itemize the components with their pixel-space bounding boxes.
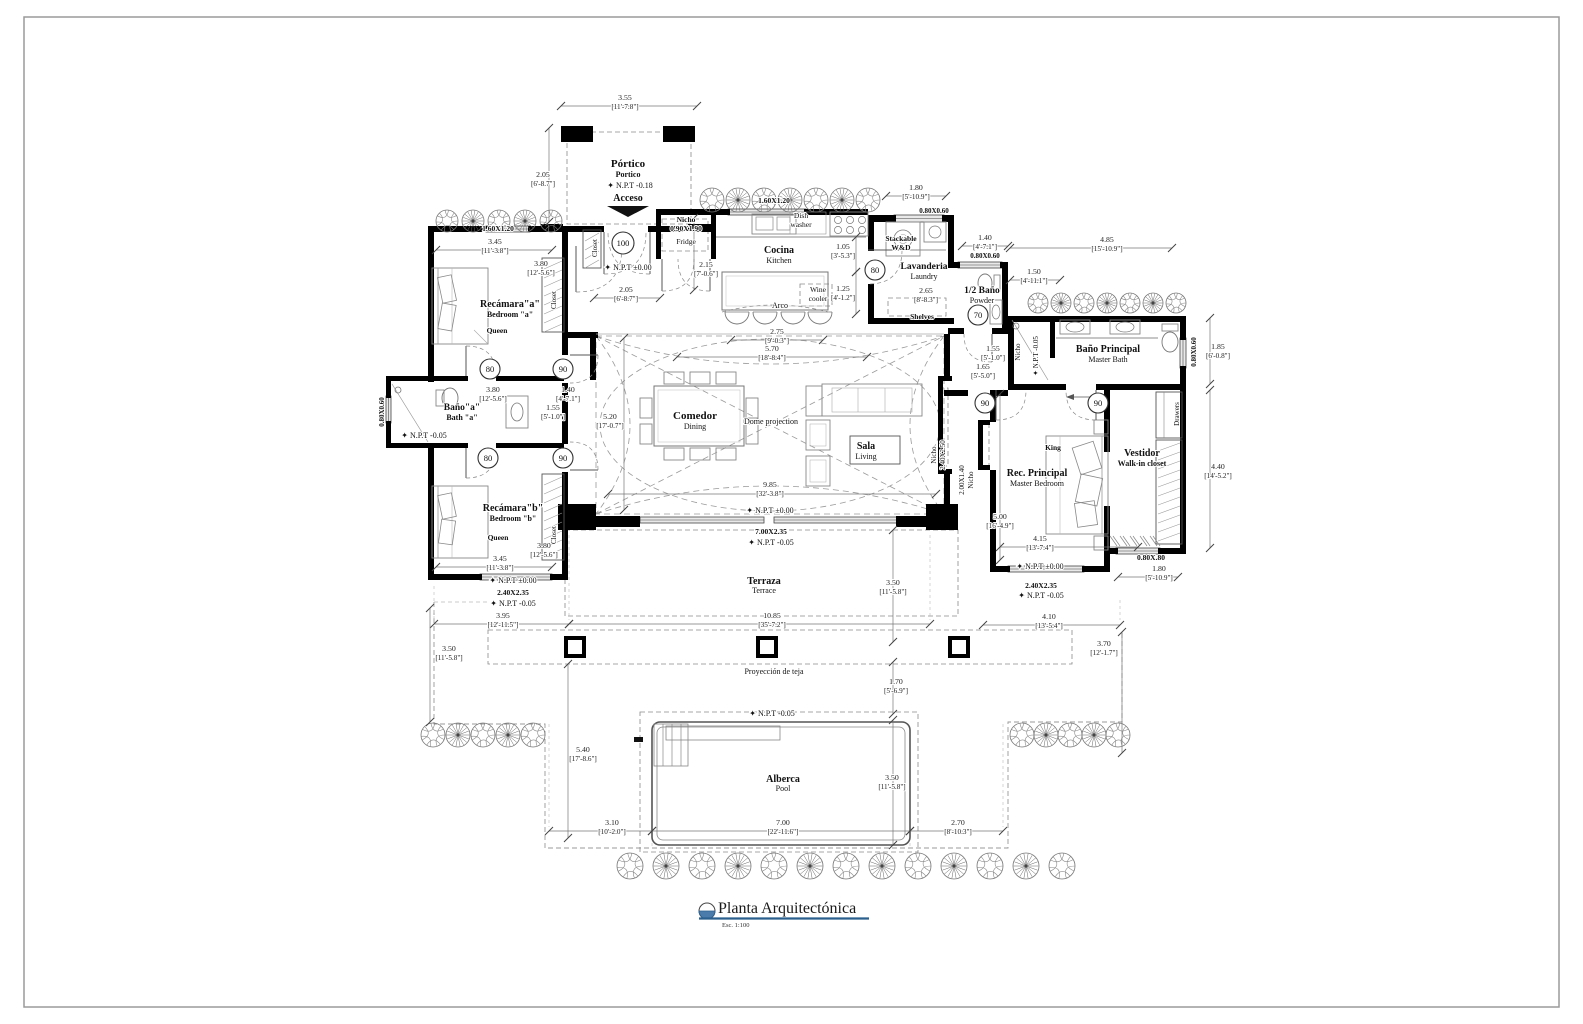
dim-label-imperial: [8'-10.3"]	[944, 828, 972, 836]
dim-label-metric: 3.45	[493, 554, 507, 563]
chair	[640, 424, 652, 444]
laundry-sink	[924, 222, 946, 242]
tree-icon	[856, 188, 880, 212]
tree-icon	[977, 853, 1003, 879]
plan-line	[1158, 533, 1180, 541]
wall	[938, 376, 952, 381]
wall	[663, 126, 695, 142]
chair	[716, 448, 736, 460]
dim-label-metric: 3.55	[618, 93, 632, 102]
room-dining: Comedor	[673, 410, 717, 422]
dim-label-imperial: [3'-5.3"]	[831, 252, 855, 260]
dim-label-metric: 2.70	[951, 818, 965, 827]
dim-label-metric: 1.25	[836, 284, 850, 293]
dim-label-imperial: [4'-11.1"]	[1020, 277, 1047, 285]
npt-terrace-door: ✦ N.P.T -0.05	[748, 538, 793, 547]
dim-label-imperial: [4'-1.2"]	[831, 294, 855, 302]
sink-basin	[756, 217, 773, 230]
plan-line	[1158, 479, 1180, 487]
dimensions-layer: 3.55[11'-7.8"]2.05[6'-8.7"]3.45[11'-3.8"…	[426, 93, 1232, 849]
dim-label-metric: 3.95	[496, 611, 510, 620]
bedroom-a-window-size: 1.60X1.20	[482, 224, 514, 233]
column	[566, 638, 584, 656]
bedroom-b-window-size: 2.40X2.35	[497, 588, 529, 597]
bed-queen-a: Queen	[487, 326, 509, 335]
dim-label-imperial: [6'-8.7"]	[614, 295, 638, 303]
vestidor-window-size: 0.80X.80	[1137, 553, 1165, 562]
tree-icon	[617, 853, 643, 879]
npt-bedroom-b: ✦ N.P.T ±0.00	[489, 576, 536, 585]
wall	[590, 332, 596, 380]
tree-icon	[1058, 723, 1082, 747]
dim-label-imperial: [5'-1.0"]	[981, 354, 1005, 362]
chair	[690, 372, 710, 384]
tree-icon	[833, 853, 859, 879]
dim-label-metric: 1.55	[986, 344, 1000, 353]
wall-nicho-2: Nicho	[967, 471, 975, 489]
room-master-bedroom: Rec. Principal	[1007, 468, 1068, 479]
dim-label-metric: 3.80	[486, 385, 500, 394]
room-living: Sala	[857, 441, 875, 452]
dim-label-imperial: [12'-5.6"]	[479, 395, 507, 403]
npt-portico: ✦ N.P.T -0.18	[607, 181, 652, 190]
burner-icon	[834, 216, 841, 223]
tree-icon	[521, 723, 545, 747]
dim-label-imperial: [17'-0.7"]	[596, 422, 624, 430]
bed-king: King	[1045, 443, 1061, 452]
dim-label-imperial: [35'-7.2"]	[758, 621, 786, 629]
wall	[948, 262, 960, 268]
room-bedroom-b-en: Bedroom "b"	[490, 514, 537, 523]
dim-label-imperial: [6'-8.7"]	[531, 180, 555, 188]
tree-icon	[1010, 723, 1034, 747]
tree-icon	[725, 853, 751, 879]
wall	[656, 209, 661, 259]
wall-nicho-2-size: 2.00X1.40	[958, 465, 966, 495]
tree-icon	[421, 723, 445, 747]
arch-label: Arco	[772, 301, 788, 310]
dim-label-imperial: [11'-3.8"]	[486, 564, 513, 572]
plan-line	[1158, 515, 1180, 523]
room-bedroom-b: Recámara"b"	[483, 503, 544, 514]
room-closet-en: Walk-in closet	[1118, 459, 1167, 468]
tree-icon	[471, 723, 495, 747]
dim-label-metric: 1.05	[836, 242, 850, 251]
plan-line	[544, 486, 562, 494]
vanity	[506, 396, 528, 428]
chair	[716, 372, 736, 384]
wall	[1008, 316, 1180, 322]
plan-line	[1143, 536, 1150, 546]
wall	[978, 465, 990, 470]
wall	[944, 390, 968, 396]
shelves: Shelves	[910, 312, 934, 321]
chair	[690, 448, 710, 460]
wall-nicho-1: Nicho	[930, 446, 938, 464]
npt-shower: ✦ N.P.T -0.05	[1032, 336, 1040, 376]
door-tag-number: 90	[1094, 398, 1103, 408]
dim-label-imperial: [12'-1.7"]	[1090, 649, 1118, 657]
wall	[1096, 384, 1186, 390]
plan-line	[1110, 536, 1117, 546]
tree-icon	[1082, 723, 1106, 747]
tree-icon	[1097, 293, 1117, 313]
room-master-bath-en: Master Bath	[1088, 355, 1127, 364]
door-tag-number: 80	[486, 364, 495, 374]
chair	[664, 372, 684, 384]
burner-icon	[846, 226, 853, 233]
npt-pool-deck: ✦ N.P.T -0.05	[749, 709, 794, 718]
dim-label-metric: 5.00	[993, 512, 1007, 521]
dishwasher-1: Dish	[794, 211, 808, 220]
master-window-size: 2.40X2.35	[1025, 581, 1057, 590]
bath-a-window-size: 0.80X0.60	[378, 397, 386, 427]
washer-dryer-2: W&D	[891, 243, 911, 252]
room-master-bedroom-en: Master Bedroom	[1010, 479, 1065, 488]
door-swing	[570, 442, 598, 470]
dim-label-imperial: [12'-5.6"]	[530, 551, 558, 559]
bed-queen-b: Queen	[488, 533, 510, 542]
plan-line	[544, 279, 562, 287]
dim-label-metric: 3.80	[537, 541, 551, 550]
dim-label-metric: 5.70	[765, 344, 779, 353]
vegetation-layer	[421, 188, 1186, 879]
sofa-seat	[832, 388, 912, 412]
dim-label-imperial: [13'-7.4"]	[1026, 544, 1054, 552]
plan-line	[544, 495, 562, 503]
closet-foyer: Closet	[591, 239, 599, 257]
wall-nicho-1-size: 2.40X2.50	[939, 440, 947, 470]
wall	[1002, 262, 1008, 334]
room-living-en: Living	[855, 452, 876, 461]
floor-plan-svg: 3.55[11'-7.8"]2.05[6'-8.7"]3.45[11'-3.8"…	[0, 0, 1583, 1024]
burner-icon	[846, 216, 853, 223]
dim-label-metric: 3.70	[1097, 639, 1111, 648]
room-laundry: Lavanderia	[901, 262, 948, 272]
dim-label-imperial: [11'-7.8"]	[611, 103, 638, 111]
wall	[1104, 506, 1110, 572]
wall	[996, 390, 1008, 396]
wall	[496, 443, 564, 448]
sink-icon	[992, 305, 1000, 319]
sofa	[822, 384, 922, 416]
washer-dryer-1: Stackable	[885, 234, 917, 243]
dim-label-imperial: [32'-3.8"]	[756, 490, 784, 498]
wall	[428, 226, 488, 232]
plan-line	[1130, 536, 1137, 546]
dishwasher-2: washer	[790, 220, 812, 229]
wall	[386, 376, 434, 381]
stool-icon	[808, 312, 832, 324]
fridge-nicho-size: 0.90X1.90	[670, 224, 702, 233]
room-bedroom-a: Recámara"a"	[480, 299, 540, 310]
closet-b: Closet	[550, 526, 558, 544]
room-laundry-en: Laundry	[910, 272, 937, 281]
wall	[944, 334, 950, 378]
room-portico: Pórtico	[611, 158, 646, 170]
armchair-seat	[810, 424, 826, 446]
npt-foyer: ✦ N.P.T ±0.00	[604, 263, 651, 272]
dim-label-metric: 3.45	[488, 237, 502, 246]
dome-projection: Dome projection	[744, 417, 798, 426]
dim-label-metric: 2.05	[536, 170, 550, 179]
dim-label-imperial: [15'-10.9"]	[1091, 245, 1122, 253]
plan-line	[1158, 470, 1180, 478]
dim-label-imperial: [5'-5.0"]	[971, 372, 995, 380]
wine-cooler-1: Wine	[810, 285, 827, 294]
dim-label-metric: 3.50	[442, 644, 456, 653]
dim-label-metric: 3.50	[886, 578, 900, 587]
dim-label-imperial: [8'-8.3"]	[914, 296, 938, 304]
door-tag-number: 80	[484, 453, 493, 463]
pool-shelf	[666, 726, 780, 740]
dim-label-metric: 9.85	[763, 480, 777, 489]
drawing-sheet: 3.55[11'-7.8"]2.05[6'-8.7"]3.45[11'-3.8"…	[0, 0, 1583, 1024]
wall	[948, 215, 954, 267]
wall	[896, 516, 928, 527]
dim-label-metric: 1.55	[546, 403, 560, 412]
tree-icon	[1051, 293, 1071, 313]
door-tag-number: 90	[559, 364, 568, 374]
wall	[1180, 316, 1186, 340]
dim-label-metric: 1.50	[1027, 267, 1041, 276]
dim-label-metric: 1.85	[1211, 342, 1225, 351]
roof-projection-outline	[488, 630, 1072, 664]
plan-line	[1133, 536, 1140, 546]
armchair	[806, 456, 830, 486]
dim-label-metric: 1.80	[909, 183, 923, 192]
wall	[992, 328, 1008, 334]
plan-line	[544, 324, 562, 332]
plan-line	[585, 260, 599, 268]
dim-label-metric: 3.50	[885, 773, 899, 782]
door-tag-number: 70	[974, 310, 983, 320]
pillow	[438, 303, 456, 331]
drawing-scale: Esc. 1:100	[722, 922, 749, 929]
room-master-bath: Baño Principal	[1076, 344, 1140, 355]
side-chair	[806, 386, 822, 416]
npt-master: ✦ N.P.T ±0.00	[1016, 562, 1063, 571]
room-kitchen-en: Kitchen	[766, 256, 791, 265]
dim-label-metric: 4.10	[1042, 612, 1056, 621]
npt-bedroom-b-out: ✦ N.P.T -0.05	[490, 599, 535, 608]
tree-icon	[1049, 853, 1075, 879]
wall	[978, 420, 983, 470]
wall	[948, 328, 964, 334]
tree-icon	[1106, 723, 1130, 747]
pillow	[438, 519, 455, 545]
dim-label-imperial: [4'-7.1"]	[556, 395, 580, 403]
dim-label-imperial: [13'-5.4"]	[1035, 622, 1063, 630]
door-tag-number: 90	[981, 398, 990, 408]
room-bedroom-a-en: Bedroom "a"	[487, 310, 533, 319]
dim-label-metric: 3.80	[534, 259, 548, 268]
dim-label-metric: 1.40	[561, 385, 575, 394]
wall	[386, 376, 391, 398]
npt-master-out: ✦ N.P.T -0.05	[1018, 591, 1063, 600]
pillow	[1074, 501, 1097, 528]
wall	[868, 215, 874, 251]
room-bath-a-en: Bath "a"	[446, 413, 477, 422]
kitchen-window-size: 1.60X1.20	[758, 196, 790, 205]
door-tag-number: 90	[559, 453, 568, 463]
tree-icon	[1166, 293, 1186, 313]
stool-icon	[725, 312, 749, 324]
dim-label-metric: 2.15	[699, 260, 713, 269]
masterbath-window-size: 0.80X0.60	[1190, 337, 1198, 367]
plan-line	[1123, 536, 1130, 546]
closet-a: Closet	[550, 291, 558, 309]
laundry-window-size: 0.80X0.60	[919, 207, 949, 215]
burner-icon	[834, 226, 841, 233]
plan-line	[1120, 536, 1127, 546]
chair	[640, 398, 652, 418]
wall	[386, 443, 434, 448]
sink-icon	[1066, 322, 1084, 332]
dim-label-imperial: [14'-5.2"]	[1204, 472, 1232, 480]
burner-icon	[858, 226, 865, 233]
wall	[428, 574, 482, 580]
dim-label-metric: 7.00	[776, 818, 790, 827]
tree-icon	[797, 853, 823, 879]
tree-icon	[726, 188, 750, 212]
dim-label-metric: 4.40	[1211, 462, 1225, 471]
wall	[428, 226, 434, 382]
roof-projection: Proyección de teja	[744, 667, 804, 676]
wall	[434, 443, 468, 448]
pool-steps	[654, 724, 688, 766]
fridge-nicho: Nicho	[677, 215, 696, 224]
dim-label-imperial: [11'-5.8"]	[878, 783, 905, 791]
wall	[562, 256, 568, 355]
plan-line	[1113, 536, 1120, 546]
dim-label-metric: 1.80	[1152, 564, 1166, 573]
wall	[434, 376, 468, 381]
dim-label-metric: 1.70	[889, 677, 903, 686]
npt-greatroom: ✦ N.P.T ±0.00	[746, 506, 793, 515]
door-swing	[662, 259, 694, 291]
dim-label-imperial: [22'-11.6"]	[768, 828, 799, 836]
plan-line	[544, 477, 562, 485]
drawers: Drawers	[1173, 402, 1181, 426]
dim-label-metric: 4.85	[1100, 235, 1114, 244]
terrace-door-size: 7.00X2.35	[755, 527, 787, 536]
dim-label-imperial: [5'-6.9"]	[884, 687, 908, 695]
tree-icon	[1120, 293, 1140, 313]
powder-window-size: 0.80X0.60	[970, 252, 1000, 260]
door-tag-number: 80	[871, 265, 880, 275]
bed	[432, 486, 488, 558]
stool-icon	[753, 312, 777, 324]
plan-line	[1158, 443, 1180, 451]
title-block: Planta Arquitectónica Esc. 1:100	[699, 900, 869, 929]
dim-label-metric: 1.65	[976, 362, 990, 371]
npt-flag	[634, 737, 643, 742]
dim-label-imperial: [5'-1.0"]	[541, 413, 565, 421]
sink-icon	[511, 403, 523, 421]
armchair-seat	[810, 460, 826, 482]
pillow	[1072, 441, 1102, 474]
room-portico-en: Portico	[616, 170, 641, 179]
room-bath-a: Baño"a"	[444, 403, 480, 413]
tree-icon	[761, 853, 787, 879]
room-terrace-en: Terrace	[752, 586, 776, 595]
dim-label-imperial: [11'-5.8"]	[435, 654, 462, 662]
burner-icon	[858, 216, 865, 223]
sink-icon	[929, 226, 941, 238]
room-powder: 1/2 Baño	[964, 286, 1000, 296]
room-closet: Vestidor	[1124, 448, 1160, 459]
stool-icon	[781, 312, 805, 324]
dim-label-imperial: [17'-8.6"]	[569, 755, 597, 763]
wine-cooler-2: cooler	[809, 294, 828, 303]
dim-label-metric: 2.65	[919, 286, 933, 295]
wall	[711, 209, 716, 259]
tree-icon	[804, 188, 828, 212]
dim-label-imperial: [7'-0.6"]	[694, 270, 718, 278]
wall	[1050, 316, 1055, 358]
dim-label-metric: 3.10	[605, 818, 619, 827]
plan-line	[1158, 488, 1180, 496]
plan-line	[1158, 497, 1180, 505]
access-arrow-icon	[607, 206, 649, 217]
tree-icon	[496, 723, 520, 747]
toilet-tank	[1162, 324, 1178, 331]
door-tag-number: 100	[617, 238, 630, 248]
tree-icon	[1028, 293, 1048, 313]
room-dining-en: Dining	[684, 422, 706, 431]
column	[758, 638, 776, 656]
dim-label-imperial: [11'-5.8"]	[879, 588, 906, 596]
dim-label-imperial: [11'-3.8"]	[481, 247, 508, 255]
column	[950, 638, 968, 656]
dim-label-imperial: [16'-4.9"]	[986, 522, 1014, 530]
wall	[496, 376, 564, 381]
drawing-title: Planta Arquitectónica	[718, 900, 856, 917]
dim-label-metric: 2.05	[619, 285, 633, 294]
room-powder-en: Powder	[970, 296, 995, 305]
access-label: Acceso	[613, 193, 642, 204]
plan-line	[1158, 506, 1180, 514]
dim-label-imperial: [10'-2.0"]	[598, 828, 626, 836]
dim-label-imperial: [4'-7.1"]	[973, 243, 997, 251]
dim-label-imperial: [12'-5.6"]	[527, 269, 555, 277]
dim-label-imperial: [12'-11.5"]	[488, 621, 519, 629]
pillow	[438, 493, 457, 519]
wall	[594, 516, 640, 527]
room-kitchen: Cocina	[764, 245, 794, 256]
door-arrow-icon	[1066, 394, 1074, 400]
npt-bath-a: ✦ N.P.T -0.05	[401, 431, 446, 440]
tree-icon	[905, 853, 931, 879]
wall	[428, 446, 434, 580]
wall	[926, 504, 958, 530]
tree-icon	[1013, 853, 1039, 879]
wall	[561, 126, 593, 142]
dim-label-metric: 4.15	[1033, 534, 1047, 543]
plan-line	[1153, 536, 1160, 546]
tree-icon	[1034, 723, 1058, 747]
fridge: Fridge	[676, 237, 696, 246]
shower-nicho: Nicho	[1014, 343, 1022, 361]
tree-icon	[941, 853, 967, 879]
wall	[1008, 384, 1066, 390]
plan-line	[1158, 524, 1180, 532]
dim-label-imperial: [6'-0.8"]	[1206, 352, 1230, 360]
tree-icon	[830, 188, 854, 212]
dim-label-imperial: [18'-8.4"]	[758, 354, 786, 362]
dim-label-metric: 1.40	[978, 233, 992, 242]
